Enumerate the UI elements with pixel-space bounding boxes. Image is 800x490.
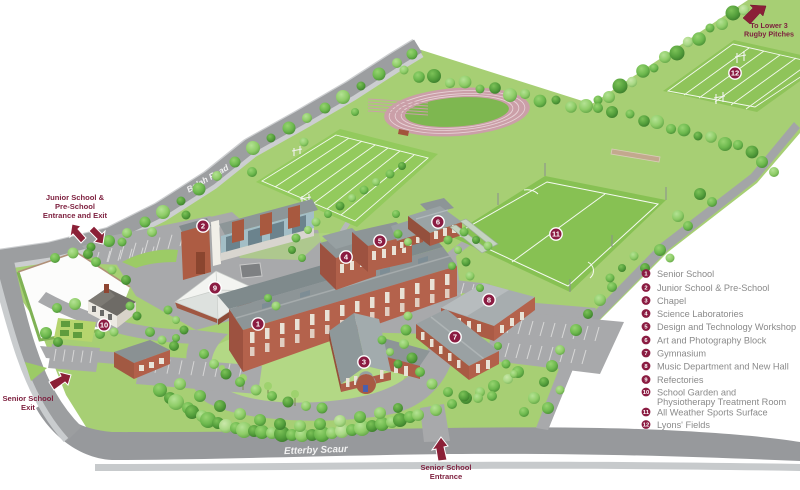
svg-text:10: 10 [643,390,649,396]
svg-text:10: 10 [100,321,108,330]
svg-text:Gymnasium: Gymnasium [657,348,706,358]
svg-text:7: 7 [644,351,647,357]
svg-text:Chapel: Chapel [657,296,686,306]
svg-text:All Weather Sports Surface: All Weather Sports Surface [657,407,768,417]
svg-text:Music Department and New Hall: Music Department and New Hall [657,361,789,371]
svg-text:Science Laboratories: Science Laboratories [657,309,744,319]
svg-text:School Garden and: School Garden and [657,387,736,397]
svg-text:11: 11 [643,410,650,416]
svg-text:Physiotherapy Treatment Room: Physiotherapy Treatment Room [657,397,787,407]
svg-text:Junior School & Pre-School: Junior School & Pre-School [657,283,769,293]
svg-text:Etterby Scaur: Etterby Scaur [284,444,349,457]
svg-text:3: 3 [362,358,366,367]
svg-text:2: 2 [201,222,205,231]
svg-text:Lyons' Fields: Lyons' Fields [657,420,710,430]
svg-text:8: 8 [487,296,491,305]
svg-text:12: 12 [643,423,649,429]
svg-text:5: 5 [378,237,382,246]
svg-text:To Lower 3Rugby Pitches: To Lower 3Rugby Pitches [744,21,794,39]
svg-text:12: 12 [731,69,739,78]
svg-text:1: 1 [256,320,260,329]
svg-text:Refectories: Refectories [657,375,704,385]
svg-text:Design and Technology Workshop: Design and Technology Workshop [657,322,796,332]
svg-text:11: 11 [552,230,560,239]
svg-text:Senior School: Senior School [657,269,714,279]
svg-text:Art and Photography Block: Art and Photography Block [657,335,767,345]
svg-text:2: 2 [644,286,647,292]
svg-text:6: 6 [436,218,440,227]
svg-text:7: 7 [453,333,457,342]
svg-text:9: 9 [213,284,217,293]
